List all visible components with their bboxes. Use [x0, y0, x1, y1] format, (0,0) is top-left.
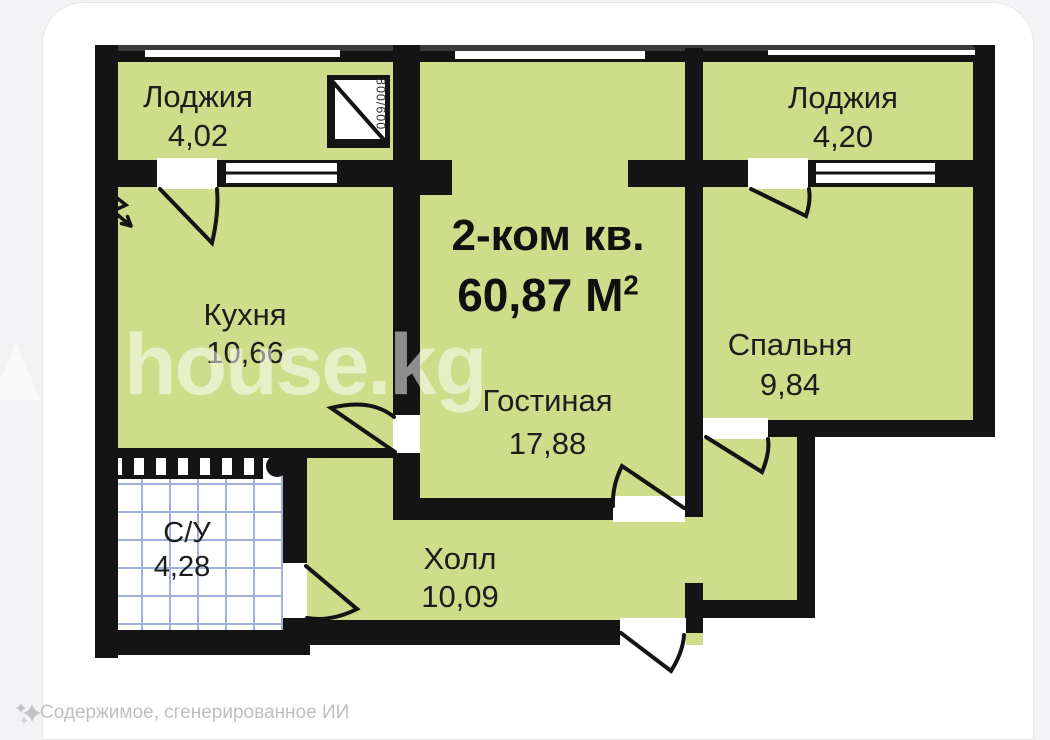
- door-opening-entrance: [620, 618, 686, 648]
- room-label-hall: Холл: [385, 542, 535, 576]
- room-label-bedroom: Спальня: [700, 328, 880, 362]
- room-area-hall: 10,09: [385, 580, 535, 614]
- wall-kitchen-bottom: [112, 448, 393, 458]
- room-label-loggia-left: Лоджия: [118, 80, 278, 114]
- door-opening-living: [613, 496, 685, 522]
- plan-total-area-value: 60,87 М: [457, 269, 623, 321]
- plan-total-area-sup: 2: [623, 270, 638, 301]
- watermark-text: house.kg: [124, 316, 486, 415]
- plan-total-area: 60,87 М2: [418, 268, 678, 322]
- window-size-annotation: 800/600: [374, 78, 387, 152]
- window-loggia-right-top: [768, 47, 975, 58]
- room-area-loggia-right: 4,20: [763, 120, 923, 154]
- door-opening-bathroom: [283, 563, 307, 618]
- wall-corridor-right: [797, 430, 815, 618]
- door-opening-kitchen-loggia: [157, 158, 217, 189]
- wall-pier-left: [420, 160, 452, 195]
- room-area-living: 17,88: [455, 427, 640, 461]
- wall-outer-left: [95, 45, 118, 658]
- door-opening-kitchen: [393, 415, 420, 453]
- ai-generated-label: Содержимое, сгенерированное ИИ: [40, 702, 349, 724]
- wall-corridor-bottom: [685, 600, 815, 618]
- room-area-bathroom: 4,28: [122, 552, 242, 584]
- wall-bathroom-bottom: [95, 630, 310, 655]
- room-label-loggia-right: Лоджия: [763, 81, 923, 115]
- plan-title-line1: 2-ком кв.: [452, 211, 645, 260]
- room-area-bedroom: 9,84: [700, 368, 880, 402]
- watermark-house-roof-icon: [0, 342, 40, 400]
- window-bedroom-loggia: [813, 160, 938, 186]
- room-area-loggia-left: 4,02: [118, 119, 278, 153]
- wall-living-bottom: [393, 498, 613, 520]
- wall-outer-right: [973, 45, 995, 437]
- window-living-top: [455, 48, 645, 62]
- screenshot-root: 800/600: [0, 0, 1050, 740]
- door-opening-bedroom: [703, 418, 768, 439]
- room-label-bathroom: С/У: [127, 518, 247, 550]
- plan-title: 2-ком кв.: [418, 211, 678, 261]
- door-opening-bedroom-loggia: [748, 158, 808, 189]
- wall-living-bedroom: [685, 48, 703, 517]
- wall-loggia-bedroom: [628, 160, 995, 187]
- wall-hall-bottom: [300, 620, 620, 645]
- window-loggia-left-top: [145, 47, 340, 60]
- window-kitchen-loggia: [223, 160, 340, 186]
